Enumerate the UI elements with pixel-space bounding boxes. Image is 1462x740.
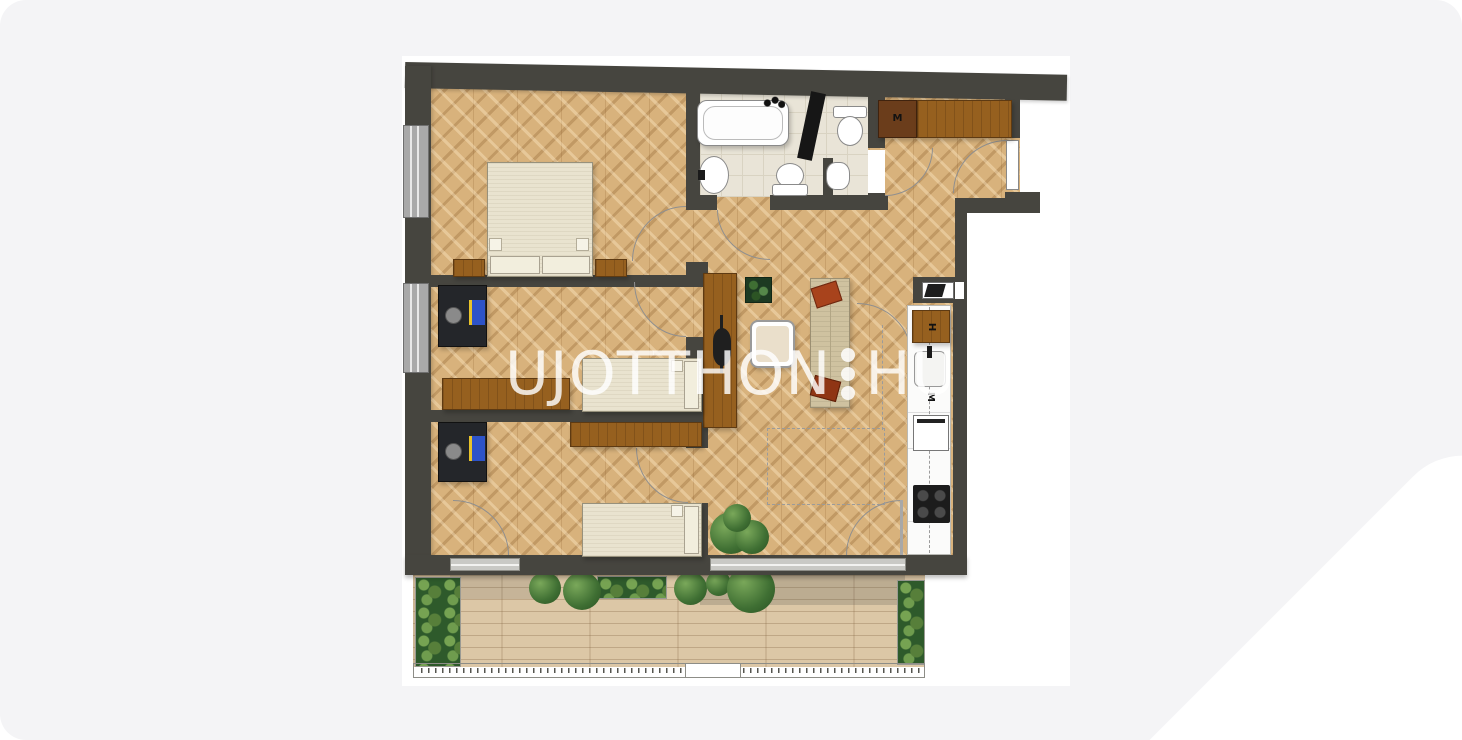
master-bed-fold-left <box>489 238 502 251</box>
exterior-mask-right <box>967 210 1067 680</box>
window-master-bedroom <box>403 125 429 218</box>
bedroom3-laptop <box>469 436 485 461</box>
master-bed-fold-right <box>576 238 589 251</box>
kitchen-oven-handle <box>917 419 945 423</box>
wc-toilet-bowl <box>837 116 863 146</box>
bedroom3-wardrobe <box>570 422 702 447</box>
dining-dashed-zone <box>767 428 885 505</box>
watermark-text-left: UJOTTHON <box>505 344 831 404</box>
master-bed-pillow-left <box>490 256 540 274</box>
wc-door-threshold <box>868 150 885 193</box>
living-plant-small <box>745 277 772 303</box>
hall-wardrobe-label: M <box>893 114 903 124</box>
terrace-railing <box>413 663 925 678</box>
watermark-dot-3 <box>841 386 855 400</box>
window-bedroom2 <box>403 283 429 373</box>
terrace-plant-2 <box>563 572 601 610</box>
screenshot-stage: M H M <box>0 0 1462 740</box>
kitchen-cooktop <box>913 485 950 523</box>
hall-cabinet <box>917 100 1012 138</box>
watermark-dot-2 <box>841 367 855 381</box>
bedroom2-chair <box>445 307 462 324</box>
bedroom3-bed-fold <box>671 505 683 517</box>
watermark-dots <box>841 348 855 400</box>
terrace-door-living <box>710 558 906 571</box>
window-kitchen-gap <box>955 282 964 299</box>
terrace-planter-center <box>597 576 667 599</box>
watermark-dot-1 <box>841 348 855 362</box>
bedroom3-chair <box>445 443 462 460</box>
wall-bathroom-bottom-a <box>686 195 717 210</box>
bedroom3-bed-pillow <box>684 506 699 554</box>
kitchen-fridge-label: H <box>926 322 936 330</box>
wc-sink <box>826 162 850 190</box>
terrace-door-bedroom3 <box>450 558 520 571</box>
wall-wc-right-b <box>868 193 885 210</box>
master-nightstand-left <box>453 259 485 277</box>
terrace-plant-1 <box>529 572 561 604</box>
bathroom-sink-tap-icon <box>698 170 705 180</box>
wall-corridor-right <box>955 213 967 277</box>
bedroom2-laptop <box>469 300 485 325</box>
shower-fixture-icon <box>763 96 785 110</box>
master-nightstand-right <box>595 259 627 277</box>
watermark: UJOTTHON HU <box>505 344 956 404</box>
wall-entry-step <box>955 198 1040 213</box>
watermark-text-right: HU <box>865 344 956 404</box>
terrace-planter-right <box>897 580 925 665</box>
entrance-door-leaf <box>1006 140 1019 190</box>
bathtub-inner <box>703 106 783 140</box>
living-plant-large-c <box>723 504 751 532</box>
window-kitchen-sash <box>924 284 946 297</box>
terrace-plant-3 <box>674 572 707 605</box>
master-bed-pillow-right <box>542 256 590 274</box>
terrace-planter-left <box>415 577 461 667</box>
living-terrace-door-leaf <box>900 500 903 555</box>
terrace-railing-gate <box>685 663 741 678</box>
hall-wardrobe: M <box>878 100 917 138</box>
bathroom-toilet-tank <box>772 184 808 196</box>
